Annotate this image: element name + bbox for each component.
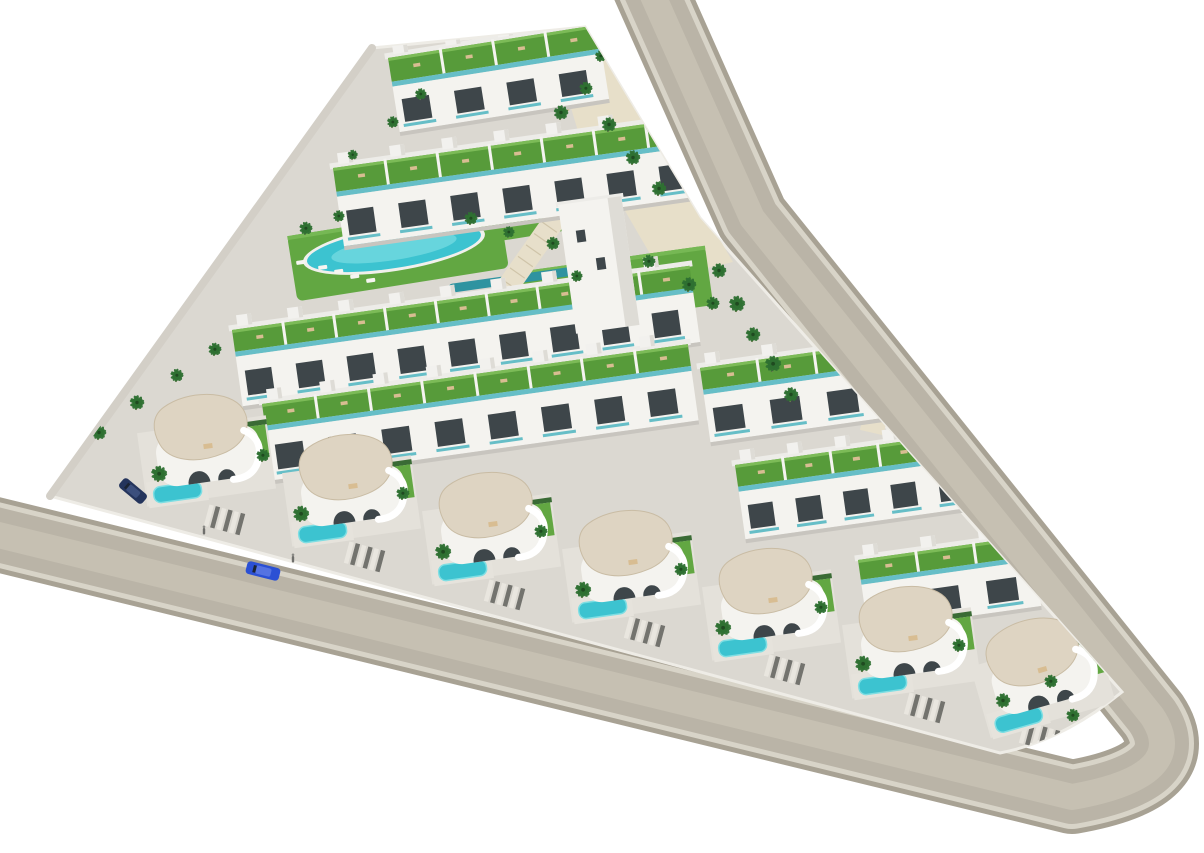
pedestrian-body <box>292 556 294 563</box>
window <box>346 207 377 236</box>
window <box>713 404 746 432</box>
pedestrian <box>203 526 206 535</box>
window <box>346 353 376 381</box>
window <box>398 199 429 228</box>
window <box>506 78 537 105</box>
window <box>550 324 580 352</box>
window <box>434 418 465 447</box>
window <box>488 411 519 440</box>
window <box>795 495 823 522</box>
window <box>890 482 918 509</box>
window <box>843 488 871 515</box>
window <box>827 388 860 416</box>
window <box>770 396 803 424</box>
pedestrian-head <box>292 554 295 557</box>
window <box>397 345 427 373</box>
pedestrian-head <box>203 526 206 529</box>
tower-window <box>576 230 587 243</box>
development-aerial-render <box>0 0 1204 853</box>
window <box>986 577 1019 604</box>
pedestrian-body <box>203 528 205 535</box>
window <box>454 87 485 114</box>
window <box>448 338 478 366</box>
pedestrian <box>292 554 295 563</box>
tower-window <box>596 257 607 270</box>
render-stage <box>0 0 1204 853</box>
window <box>499 331 529 359</box>
window <box>651 310 681 338</box>
window <box>594 396 625 425</box>
window <box>748 502 776 529</box>
window <box>541 403 572 432</box>
window <box>502 185 533 214</box>
window <box>647 388 678 417</box>
window <box>402 95 433 122</box>
